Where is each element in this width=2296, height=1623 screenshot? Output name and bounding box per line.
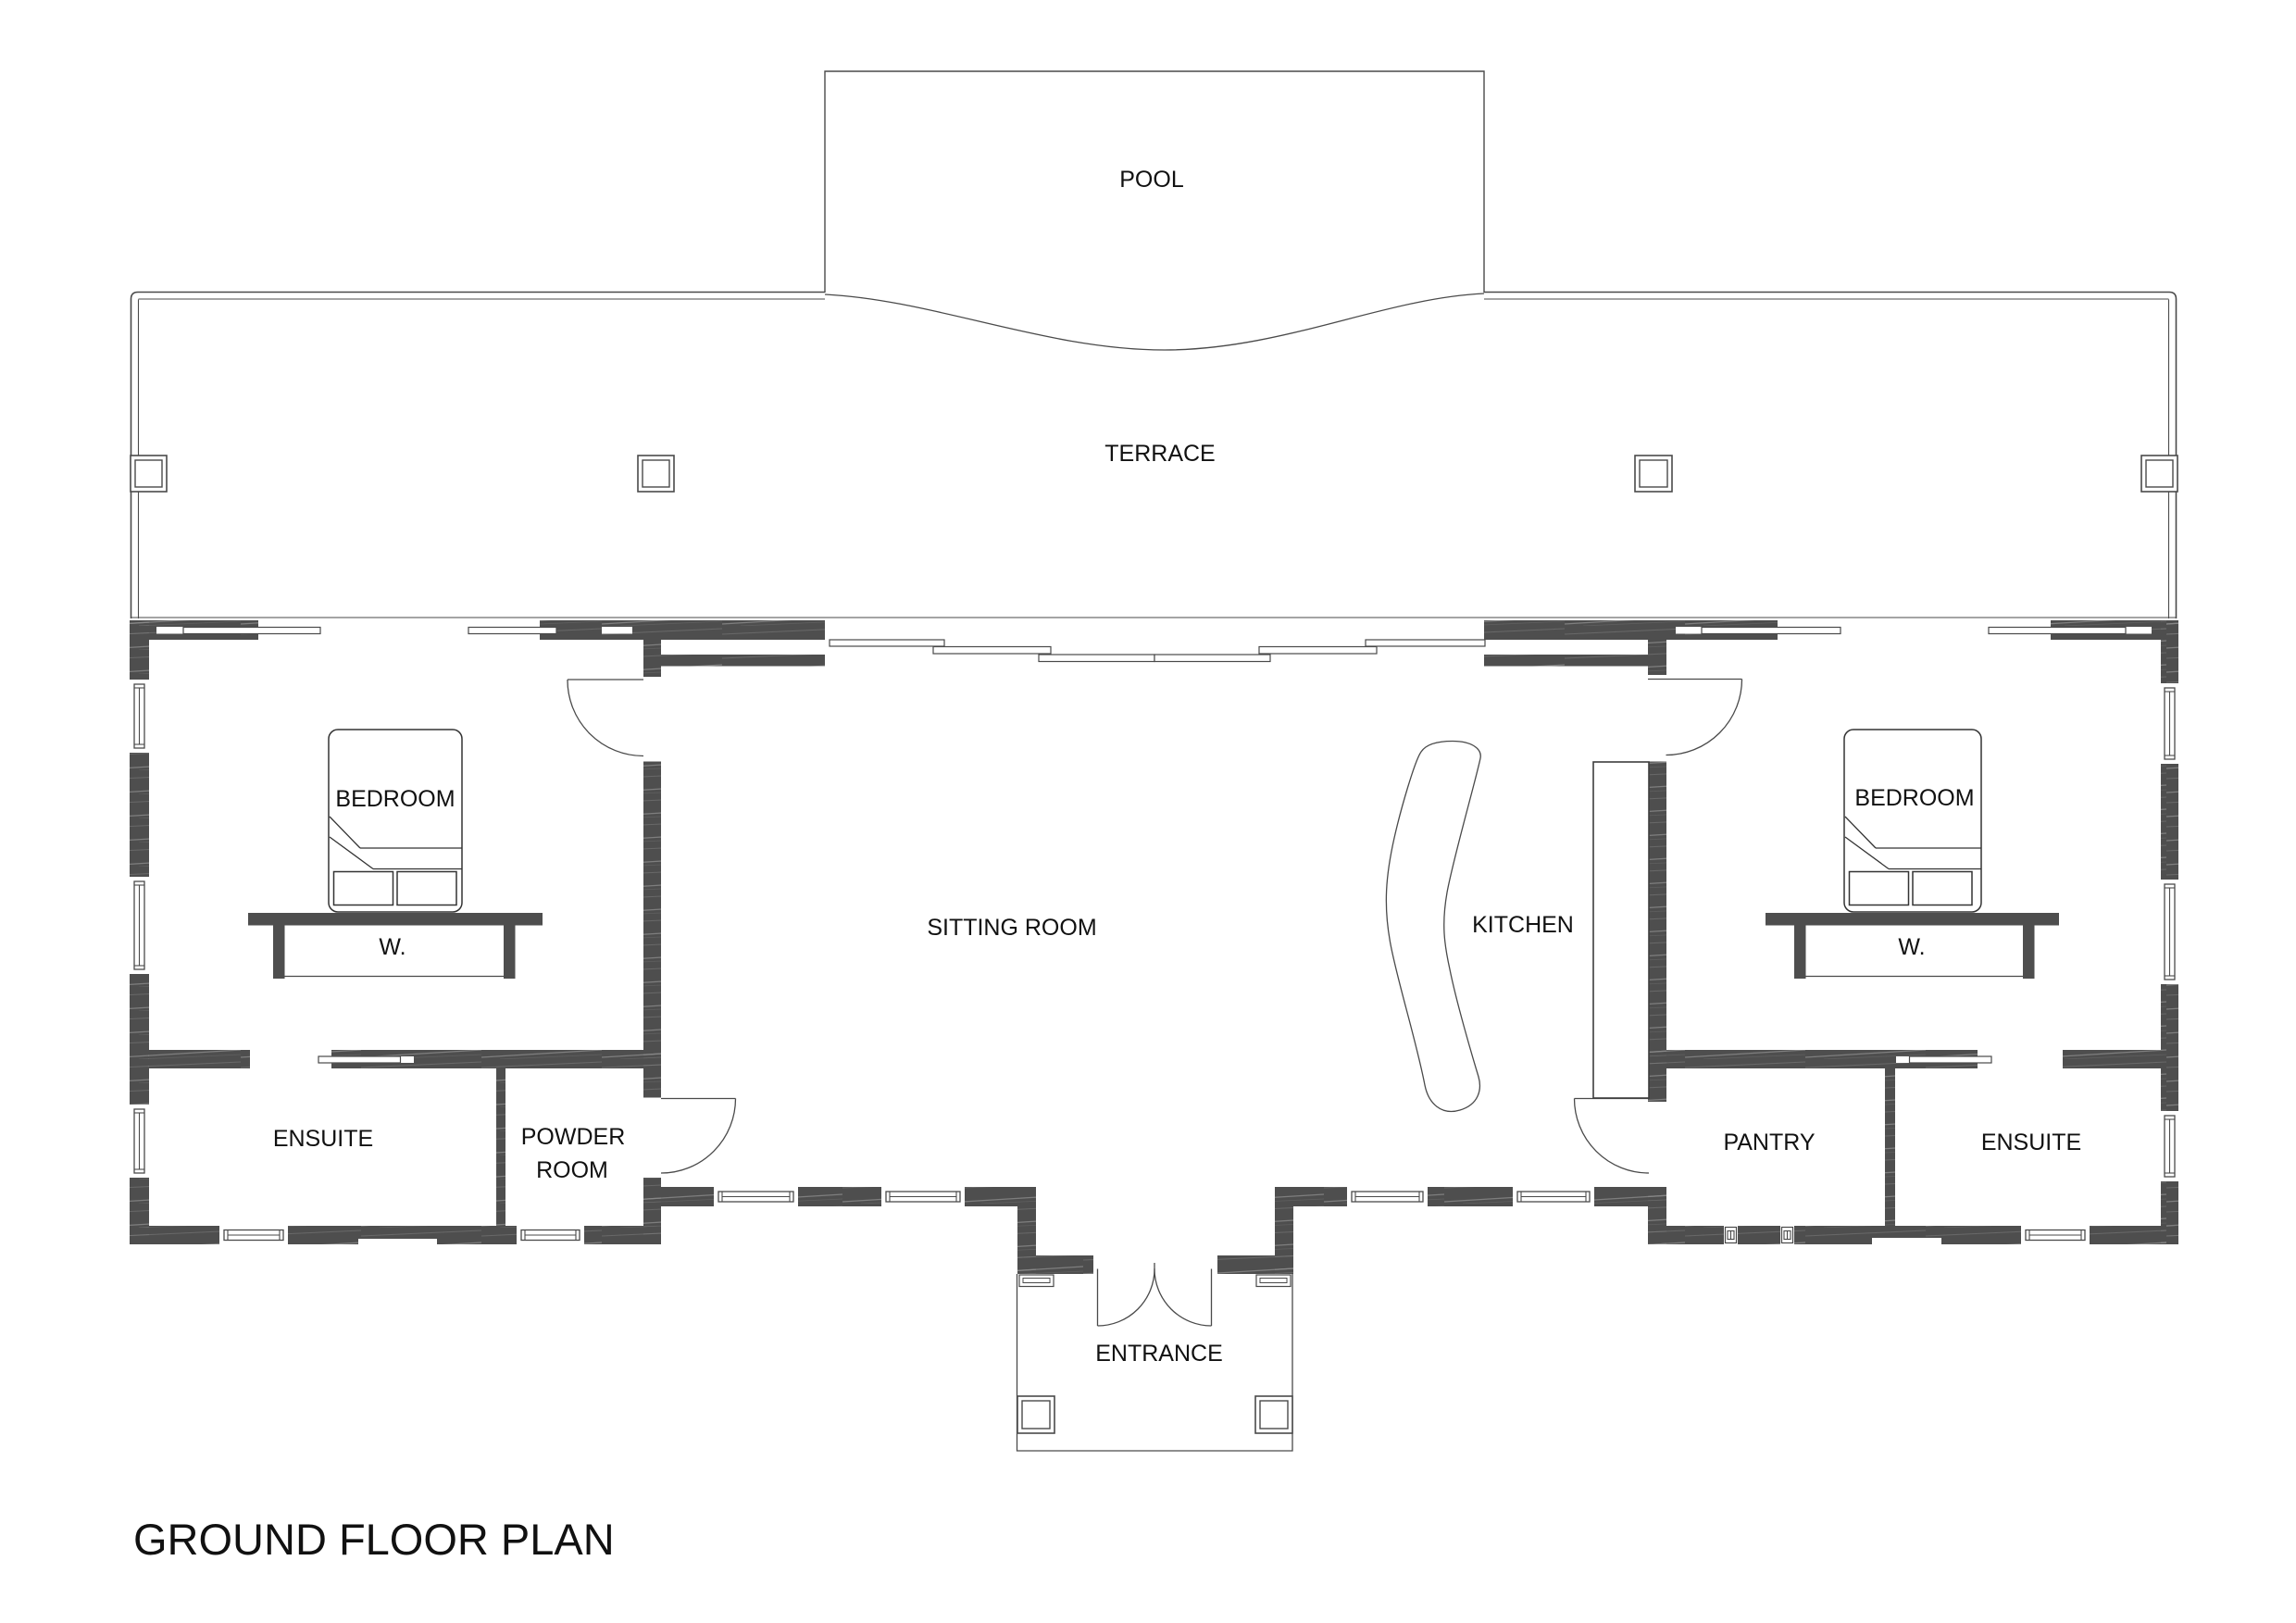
svg-text:ROOM: ROOM bbox=[536, 1157, 608, 1183]
svg-text:PANTRY: PANTRY bbox=[1723, 1130, 1815, 1155]
svg-text:ENSUITE: ENSUITE bbox=[1981, 1130, 2081, 1155]
svg-text:BEDROOM: BEDROOM bbox=[335, 786, 455, 812]
svg-text:GROUND FLOOR PLAN: GROUND FLOOR PLAN bbox=[133, 1515, 615, 1564]
svg-text:W.: W. bbox=[1898, 934, 1925, 960]
svg-text:ENTRANCE: ENTRANCE bbox=[1095, 1341, 1223, 1367]
svg-text:KITCHEN: KITCHEN bbox=[1472, 912, 1574, 938]
svg-text:W.: W. bbox=[379, 934, 406, 960]
svg-text:POOL: POOL bbox=[1119, 167, 1184, 193]
svg-text:POWDER: POWDER bbox=[521, 1124, 626, 1150]
svg-text:TERRACE: TERRACE bbox=[1104, 441, 1215, 467]
svg-text:ENSUITE: ENSUITE bbox=[273, 1126, 373, 1152]
svg-text:BEDROOM: BEDROOM bbox=[1854, 785, 1974, 811]
svg-text:SITTING ROOM: SITTING ROOM bbox=[927, 915, 1096, 941]
